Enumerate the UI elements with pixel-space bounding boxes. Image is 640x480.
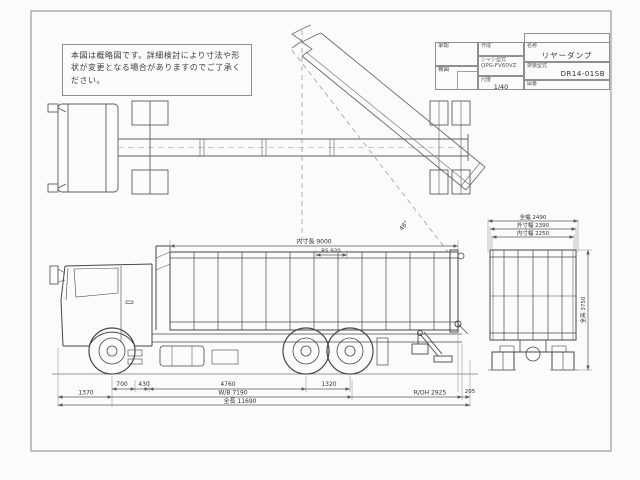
mirror-left-icon [48,104,58,112]
disclaimer-text: 本図は概略図です。詳細検討により寸法や形状が変更となる場合がありますのでご了承く… [71,51,241,85]
body-model-label: 架装型式 [525,63,609,69]
fuel-tank [160,346,204,366]
approve-label: 承認 [436,43,477,50]
dump-body [156,246,464,332]
disclaimer-note: 本図は概略図です。詳細検討により寸法や形状が変更となる場合がありますのでご了承く… [62,44,252,96]
cell-name: 名称 リヤーダンプ [524,42,610,62]
body-model-value: DR14-01SB [525,70,609,78]
name-label: 名称 [525,43,609,49]
cell-prepared: 作成 [478,42,524,56]
dim-205: 205 [465,389,476,395]
dim-rear-overhang: R/OH 2925 [414,390,447,397]
differential [526,347,540,361]
dim-overall-height: 全高 3750 [579,296,587,323]
dim-700: 700 [116,381,128,388]
dim-430: 430 [138,381,150,388]
cab [50,264,152,364]
side-view [50,246,478,374]
chassis-value: QPG-FV60VZ [479,63,523,70]
cell-scale: 尺度 1/40 [478,76,524,90]
dwg-no-label: 図番 [525,81,609,87]
dim-inner-width: 内寸幅 2250 [517,229,550,237]
tailgate-hinge [458,253,464,259]
cell-check: 検図 [435,66,478,90]
scale-value: 1/40 [479,83,523,90]
check-stamp-cell [457,71,478,90]
prepared-label: 作成 [479,43,523,49]
dim-wheelbase: W/B 7190 [218,390,247,397]
mirror-icon [50,266,58,284]
dim-overall-length: 全長 11690 [224,397,257,405]
cell-dwg-no: 図番 [524,80,610,90]
cell-body-model: 架装型式 DR14-01SB [524,62,610,80]
tool-box [212,350,238,364]
rear-view [488,250,578,370]
name-value: リヤーダンプ [525,50,609,61]
rear-mechanism [412,321,468,362]
dim-inner-length: 内寸長 9000 [296,238,331,246]
dump-angle-label: 48° [398,220,410,233]
dim-overall-width: 全幅 2490 [520,213,547,221]
dim-1370: 1370 [78,390,93,397]
dim-4760: 4760 [220,381,235,388]
mirror-right-icon [48,184,58,192]
dim-outer-width: 外寸幅 2390 [517,221,550,229]
rear-wheels [283,328,373,374]
cell-chassis: シャシ型式 QPG-FV60VZ [478,56,524,76]
dim-920: RS 920 [321,249,341,255]
dim-1320: 1320 [321,381,336,388]
cell-approve: 承認 [435,42,478,66]
